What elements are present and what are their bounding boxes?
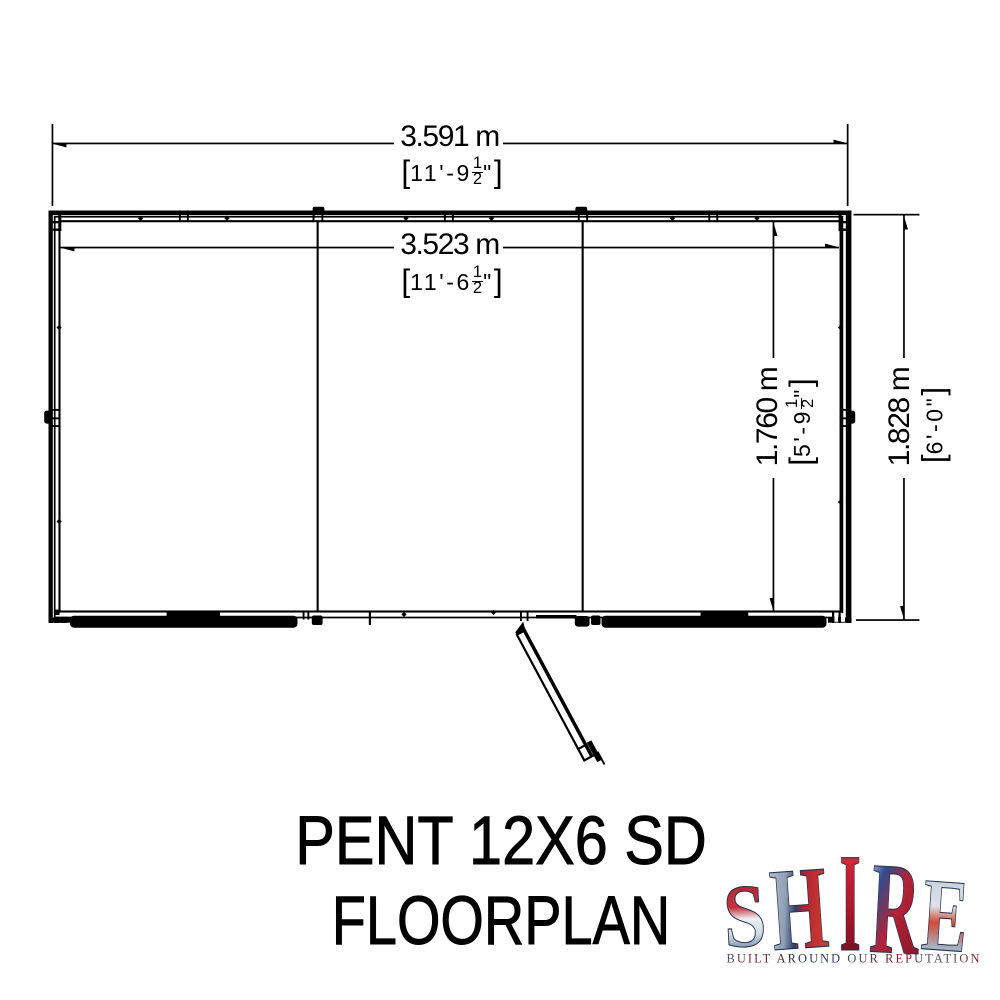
svg-text:BUILT AROUND OUR REPUTATION: BUILT AROUND OUR REPUTATION — [727, 952, 982, 966]
